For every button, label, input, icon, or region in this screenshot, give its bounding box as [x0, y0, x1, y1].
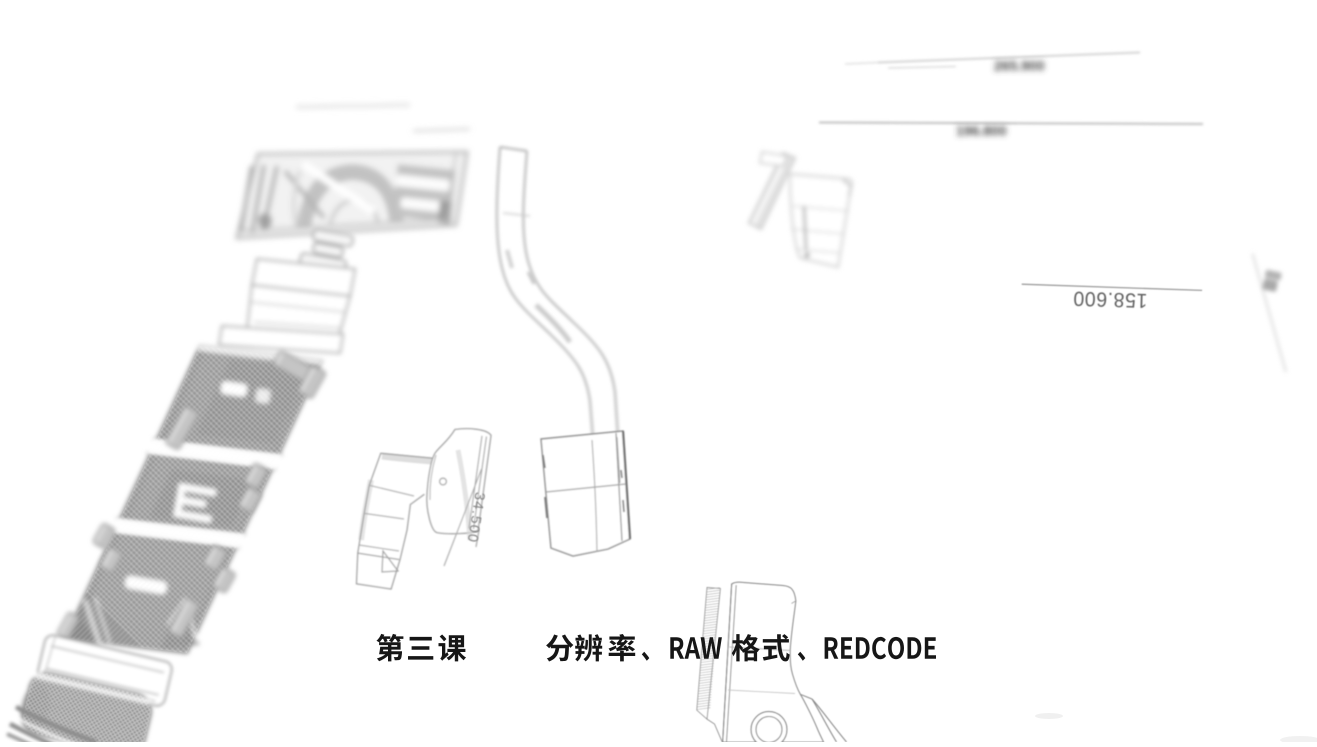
svg-text:265.900: 265.900 — [994, 58, 1045, 74]
svg-text:158.600: 158.600 — [1073, 287, 1148, 312]
svg-text:196.800: 196.800 — [956, 123, 1007, 139]
